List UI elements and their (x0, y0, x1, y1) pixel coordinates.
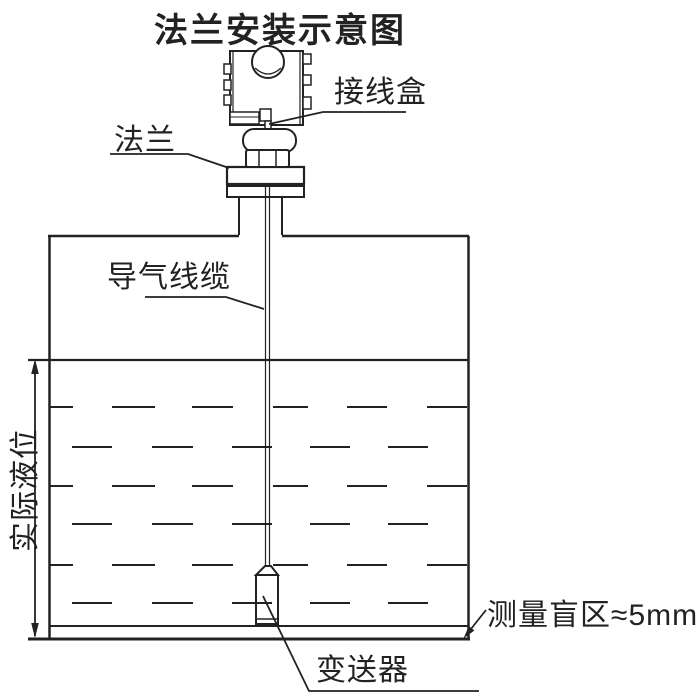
conduit-stem (265, 121, 271, 129)
probe-taper (256, 566, 278, 575)
label-actual-level: 实际液位 (0, 424, 34, 556)
housing-left-tab (224, 80, 231, 90)
housing-left-tab (224, 64, 231, 74)
conduit-connector-block (260, 109, 271, 121)
housing-right-tab (303, 97, 311, 109)
process-connection-body (243, 129, 296, 152)
housing-left-tab (224, 95, 231, 105)
leader-lines (110, 112, 479, 691)
vent-cable-line (266, 185, 270, 567)
arrow-down-icon (31, 623, 39, 638)
blind-zone-arrow (464, 610, 487, 639)
housing-right-tab (303, 54, 311, 64)
flange-plate (227, 167, 304, 184)
housing-right-tab (303, 75, 311, 85)
page-title: 法兰安装示意图 (0, 3, 560, 52)
label-flange: 法兰 (114, 125, 176, 157)
label-transmitter: 变送器 (316, 655, 409, 687)
label-blind-zone: 测量盲区≈5mm (487, 600, 698, 632)
instrument-housing (224, 46, 311, 167)
conduit-connector-box (230, 112, 259, 124)
liquid (28, 360, 468, 603)
label-vent-cable: 导气线缆 (107, 262, 231, 294)
vent-cable-leader (145, 297, 264, 309)
tank-outline (28, 236, 470, 639)
arrow-up-icon (31, 359, 39, 374)
hex-nut (246, 150, 289, 167)
transmitter-probe (256, 566, 278, 624)
diagram-page: 法兰安装示意图 接线盒 法兰 导气线缆 实际液位 测量盲区≈5mm 变送器 (0, 0, 700, 700)
probe-body (256, 575, 278, 624)
label-junction-box: 接线盒 (334, 77, 427, 109)
